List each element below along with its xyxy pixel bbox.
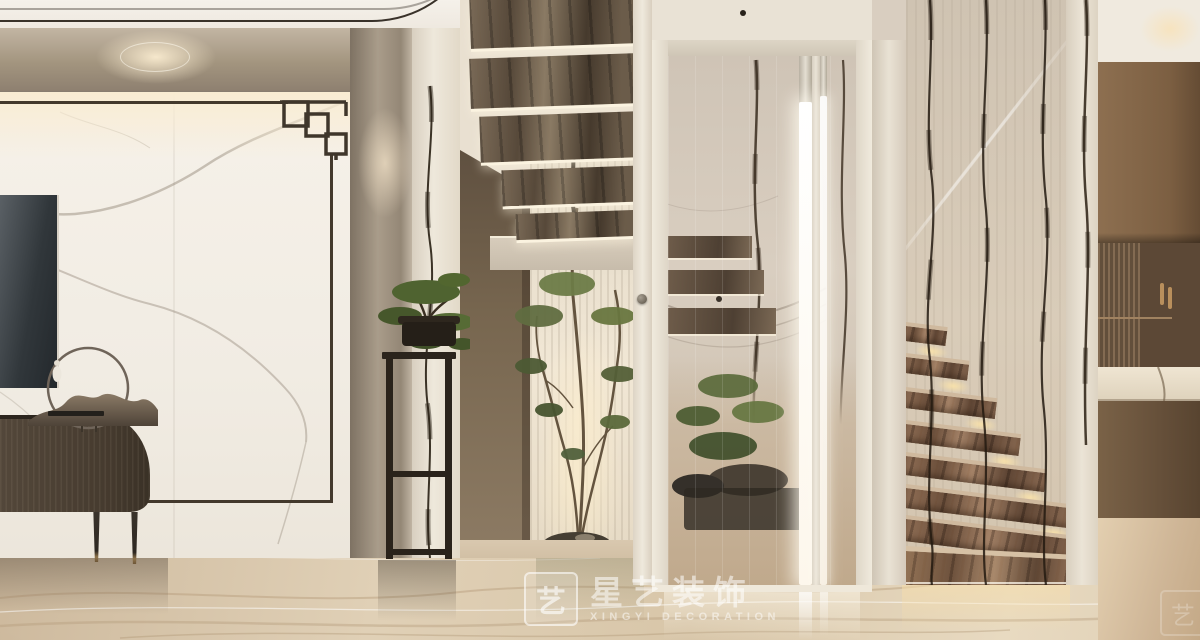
glass-fitting-dot: [716, 296, 722, 302]
stair-underside-slat: [469, 53, 633, 109]
bar-nook: [1098, 0, 1200, 640]
plant-stand-crossbar: [393, 471, 445, 477]
ceiling: [0, 0, 462, 30]
cabinet-handle: [1160, 283, 1164, 305]
led-strip-reflection: [799, 588, 812, 640]
brand-name-english: XINGYI DECORATION: [590, 612, 780, 623]
stair-underside-slat: [501, 166, 633, 207]
stairwell-veins: [906, 0, 1066, 585]
nook-upper-cabinet: [1098, 62, 1200, 243]
brand-watermark: 艺 星艺装饰 XINGYI DECORATION: [524, 572, 780, 626]
interior-render-scene: 艺 星艺装饰 XINGYI DECORATION 艺: [0, 0, 1200, 640]
marble-frame-top: [0, 28, 352, 92]
stairwell: [906, 0, 1066, 585]
hallway: [460, 0, 633, 558]
ring-sculpture: [22, 344, 162, 434]
metal-frame-line-top: [0, 101, 288, 104]
fluted-glass-panel: [1098, 243, 1140, 367]
white-pillar-right: [872, 40, 906, 585]
plant-stand: [386, 359, 452, 559]
led-strip-reflection-2: [820, 588, 828, 636]
brand-name-chinese: 星艺装饰: [590, 576, 780, 609]
pillar-2-vein: [1066, 0, 1098, 450]
brand-watermark-corner: 艺: [1160, 590, 1200, 636]
stair-underside-slat: [469, 0, 633, 49]
ceiling-cove-line-2: [0, 0, 462, 10]
glass-door-unit: [652, 0, 872, 592]
spotlight-wash-2: [358, 108, 412, 218]
door-frame-head: [652, 40, 872, 56]
marble-pillar-2: [1066, 0, 1098, 585]
wall-strip: [872, 0, 906, 40]
metal-frame-line-right: [330, 154, 333, 502]
door-jamb-left: [652, 40, 668, 585]
brand-logo-glyph-small: 艺: [1171, 596, 1195, 631]
bonsai-plant: [368, 258, 470, 364]
door-knob: [637, 294, 647, 304]
hallway-far-ceiling: [490, 236, 633, 270]
spotlight-ring: [120, 42, 190, 72]
cabinet-tray-item: [48, 411, 104, 416]
glass-door-panel: [668, 56, 856, 585]
cabinet-reflection: [0, 558, 168, 630]
led-strip-2: [820, 96, 827, 585]
door-stile: [633, 0, 652, 585]
stair-glow-reflection: [902, 585, 1070, 640]
hallway-floor: [460, 540, 633, 558]
stair-underside-slat: [516, 210, 633, 240]
glass-mullion: [812, 56, 820, 585]
led-strip: [799, 102, 812, 585]
wall-above-door: [652, 0, 872, 40]
cabinet-handle-2: [1168, 287, 1172, 309]
nook-ceiling: [1098, 0, 1200, 62]
brand-text-block: 星艺装饰 XINGYI DECORATION: [590, 576, 780, 623]
brand-logo-glyph: 艺: [536, 577, 566, 621]
led-strip-cap: [799, 56, 812, 102]
fretwork-corner-ornament: [280, 94, 350, 164]
nook-counter: [1098, 367, 1200, 401]
plant-stand-footbar: [393, 549, 445, 555]
stair-underside-slat: [479, 111, 633, 162]
door-sensor-dot: [740, 10, 746, 16]
brand-logo: 艺: [524, 572, 578, 626]
counter-vein: [1098, 367, 1200, 401]
nook-downlight-glow: [1140, 6, 1200, 52]
led-strip-cap-2: [820, 56, 827, 96]
nook-shelf-line: [1098, 317, 1172, 319]
nook-back-wall: [1098, 243, 1200, 367]
glass-streaks: [668, 56, 856, 585]
plant-stand-reflection: [378, 560, 456, 634]
door-jamb-right: [856, 40, 872, 585]
nook-base-cabinet: [1098, 401, 1200, 518]
